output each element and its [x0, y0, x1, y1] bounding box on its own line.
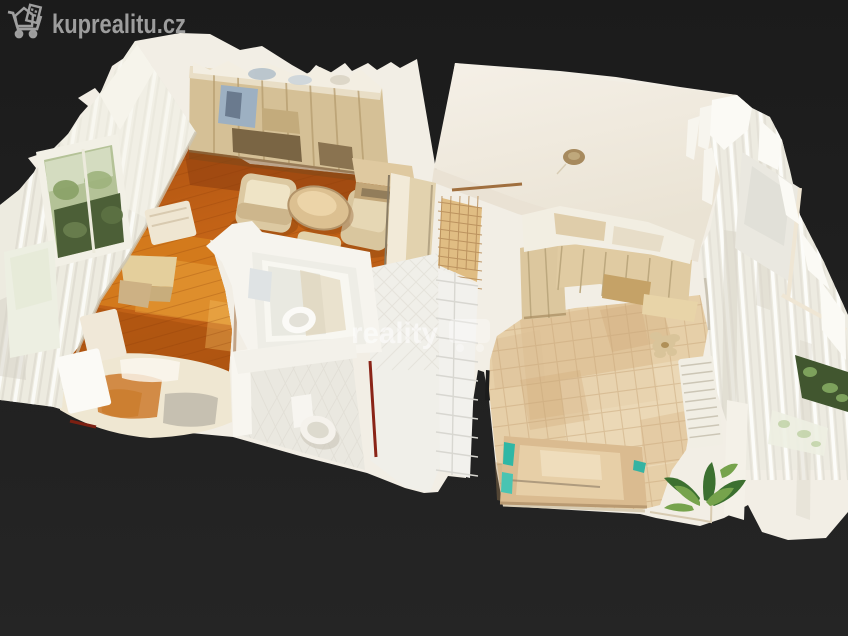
- svg-text:reality: reality: [351, 317, 438, 350]
- svg-text:kuprealitu.cz: kuprealitu.cz: [52, 9, 186, 39]
